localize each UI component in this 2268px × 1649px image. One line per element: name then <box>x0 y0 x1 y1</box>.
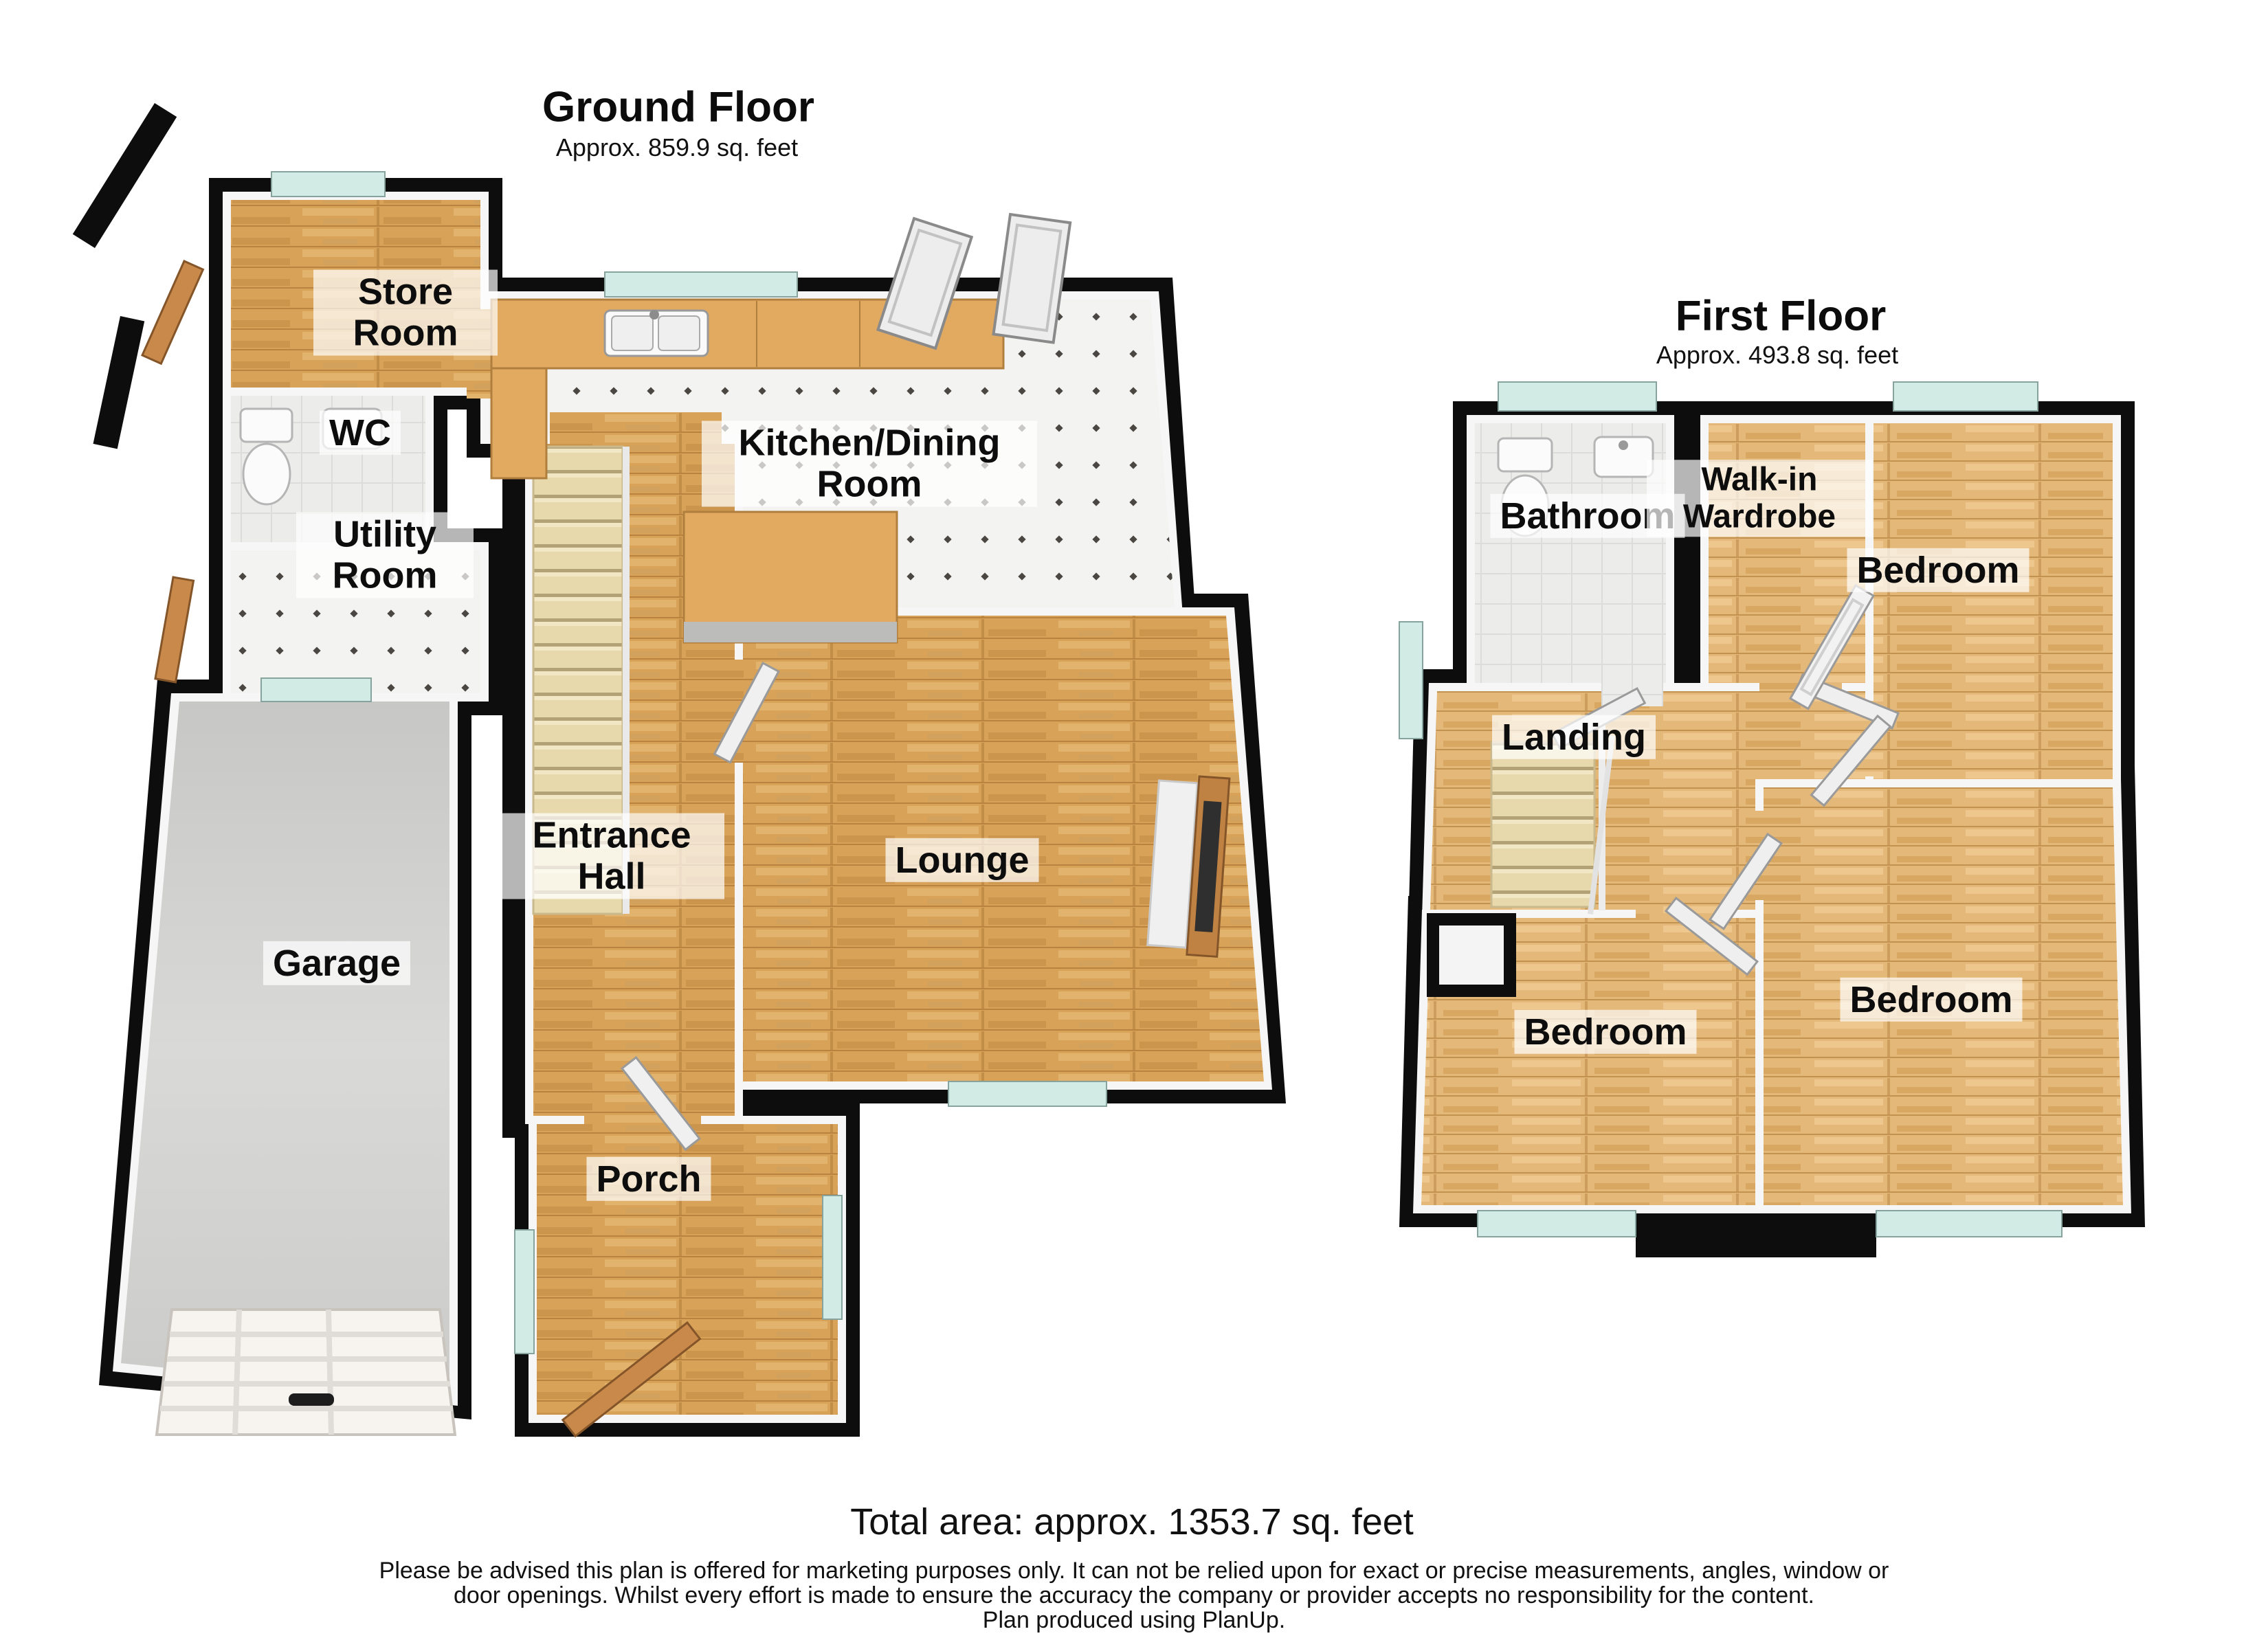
first-floor-area: Approx. 493.8 sq. feet <box>1656 341 1898 370</box>
total-area-text: Total area: approx. 1353.7 sq. feet <box>850 1501 1414 1543</box>
disclaimer-text: Please be advised this plan is offered f… <box>241 1558 2027 1633</box>
side-door-wood-top <box>142 261 203 363</box>
room-label-lounge: Lounge <box>886 838 1039 882</box>
room-label-bedroom-bottom-right: Bedroom <box>1840 978 2022 1022</box>
room-label-wc: WC <box>320 411 401 455</box>
room-floor-garage <box>121 702 449 1398</box>
disclaimer-line-2: door openings. Whilst every effort is ma… <box>241 1583 2027 1608</box>
ground-floor-plan <box>73 103 1286 1437</box>
floorplan-page: { "ground_floor": { "title": "Ground Flo… <box>0 0 2268 1649</box>
disclaimer-line-1: Please be advised this plan is offered f… <box>241 1558 2027 1583</box>
side-door-wood-utility <box>155 577 194 682</box>
room-label-bedroom-bottom-left: Bedroom <box>1514 1010 1696 1054</box>
floorplan-drawing <box>0 0 2268 1649</box>
lounge-fireplace <box>1147 774 1230 956</box>
room-label-landing: Landing <box>1492 715 1656 759</box>
ground-floor-title: Ground Floor <box>542 83 814 132</box>
room-label-bedroom-top-right: Bedroom <box>1847 548 2029 592</box>
garage-door <box>157 1310 455 1435</box>
bathroom-sink <box>1594 437 1653 477</box>
room-label-kitchen-dining-room: Kitchen/Dining Room <box>702 421 1037 507</box>
room-floor-bedroom-top-right <box>1874 423 2113 779</box>
room-label-store-room: Store Room <box>313 270 498 356</box>
room-label-entrance-hall: Entrance Hall <box>499 814 724 899</box>
room-label-garage: Garage <box>263 941 410 985</box>
room-label-walk-in-wardrobe: Walk-in Wardrobe <box>1647 460 1872 537</box>
kitchen-island <box>684 512 897 642</box>
wc-toilet <box>241 409 292 504</box>
room-label-utility-room: Utility Room <box>296 513 474 598</box>
room-label-porch: Porch <box>586 1157 711 1201</box>
first-floor-title: First Floor <box>1676 292 1887 341</box>
disclaimer-line-3: Plan produced using PlanUp. <box>241 1608 2027 1633</box>
ground-floor-area: Approx. 859.9 sq. feet <box>556 133 798 162</box>
